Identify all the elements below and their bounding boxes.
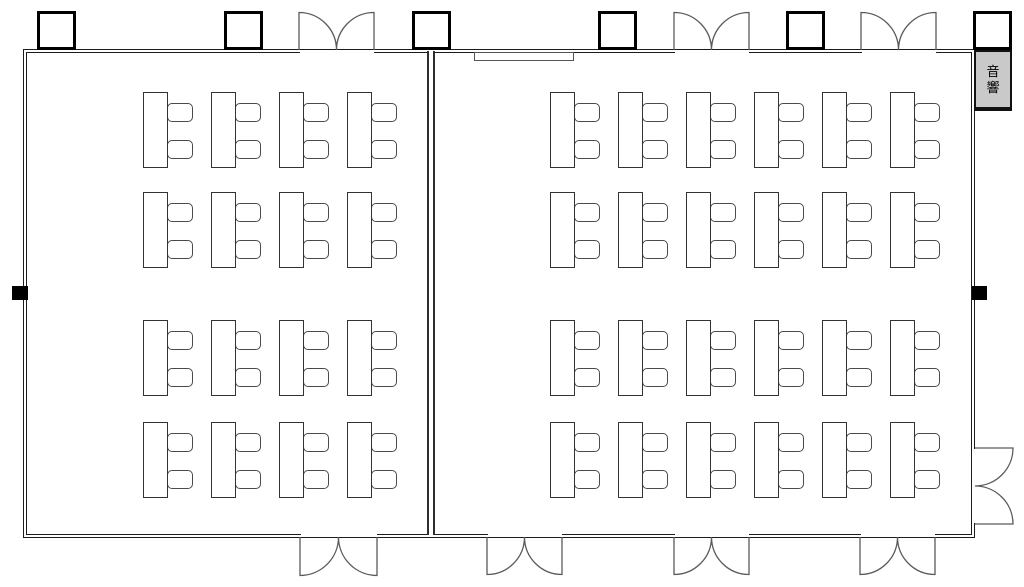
double-door	[674, 537, 749, 575]
double-door	[860, 537, 935, 575]
double-door	[674, 13, 749, 51]
chair	[710, 470, 736, 489]
partition-wall	[427, 51, 435, 535]
chair	[167, 368, 193, 387]
chair	[642, 368, 668, 387]
chair	[778, 433, 804, 452]
table	[347, 320, 372, 396]
chair	[574, 433, 600, 452]
chair	[235, 433, 261, 452]
chair	[642, 103, 668, 122]
wall-mounted-board	[474, 52, 574, 61]
table	[279, 320, 304, 396]
door-threshold	[675, 534, 749, 537]
table	[143, 92, 168, 168]
chair	[710, 140, 736, 159]
chair	[371, 368, 397, 387]
chair	[371, 140, 397, 159]
table	[143, 422, 168, 498]
chair	[778, 203, 804, 222]
chair	[778, 470, 804, 489]
chair	[642, 470, 668, 489]
chair	[167, 203, 193, 222]
table	[890, 320, 915, 396]
table	[618, 92, 643, 168]
door-threshold	[488, 534, 562, 537]
chair	[710, 331, 736, 350]
double-door	[299, 13, 374, 51]
pillar	[37, 11, 76, 50]
chair	[235, 331, 261, 350]
table	[550, 422, 575, 498]
table	[211, 422, 236, 498]
chair	[167, 103, 193, 122]
chair	[574, 240, 600, 259]
wall-outlet	[12, 286, 28, 300]
chair	[235, 140, 261, 159]
chair	[642, 140, 668, 159]
chair	[914, 103, 940, 122]
chair	[303, 240, 329, 259]
pillar	[224, 11, 263, 50]
pillar	[786, 11, 825, 50]
chair	[778, 240, 804, 259]
chair	[235, 470, 261, 489]
table	[686, 192, 711, 268]
table	[550, 92, 575, 168]
chair	[303, 203, 329, 222]
chair	[914, 433, 940, 452]
chair	[642, 240, 668, 259]
chair	[710, 368, 736, 387]
chair	[846, 368, 872, 387]
chair	[914, 368, 940, 387]
chair	[846, 433, 872, 452]
table	[279, 92, 304, 168]
double-door	[300, 537, 377, 576]
chair	[642, 433, 668, 452]
table	[822, 92, 847, 168]
table	[211, 320, 236, 396]
chair	[303, 103, 329, 122]
table	[618, 192, 643, 268]
chair	[846, 331, 872, 350]
chair	[574, 368, 600, 387]
double-door	[861, 13, 936, 51]
chair	[371, 331, 397, 350]
chair	[167, 240, 193, 259]
pillar	[598, 11, 637, 50]
table	[890, 192, 915, 268]
chair	[235, 240, 261, 259]
chair	[371, 433, 397, 452]
door-threshold	[861, 534, 935, 537]
double-door	[975, 448, 1013, 524]
door-threshold	[862, 51, 936, 54]
chair	[235, 368, 261, 387]
door-threshold	[675, 51, 749, 54]
chair	[303, 433, 329, 452]
table	[550, 320, 575, 396]
double-door	[487, 537, 562, 575]
chair	[846, 470, 872, 489]
table	[143, 192, 168, 268]
table	[143, 320, 168, 396]
door-threshold	[301, 534, 377, 537]
door-threshold	[972, 449, 977, 523]
chair	[778, 331, 804, 350]
chair	[574, 331, 600, 350]
chair	[167, 331, 193, 350]
door-threshold	[300, 51, 374, 54]
chair	[642, 203, 668, 222]
chair	[710, 433, 736, 452]
chair	[574, 203, 600, 222]
table	[347, 422, 372, 498]
table	[822, 320, 847, 396]
table	[686, 92, 711, 168]
table	[822, 192, 847, 268]
floor-plan: 音 響	[0, 0, 1024, 587]
table	[754, 422, 779, 498]
chair	[710, 240, 736, 259]
audio-booth: 音 響	[974, 50, 1012, 111]
chair	[303, 140, 329, 159]
table	[211, 92, 236, 168]
table	[618, 320, 643, 396]
chair	[778, 140, 804, 159]
table	[347, 192, 372, 268]
chair	[778, 103, 804, 122]
chair	[642, 331, 668, 350]
chair	[710, 103, 736, 122]
table	[279, 422, 304, 498]
pillar	[973, 11, 1012, 50]
chair	[914, 203, 940, 222]
chair	[371, 103, 397, 122]
chair	[167, 140, 193, 159]
pillar	[412, 11, 451, 50]
table	[279, 192, 304, 268]
table	[890, 92, 915, 168]
chair	[574, 140, 600, 159]
table	[618, 422, 643, 498]
chair	[235, 203, 261, 222]
chair	[371, 240, 397, 259]
audio-booth-label: 音 響	[976, 52, 1010, 107]
chair	[778, 368, 804, 387]
chair	[235, 103, 261, 122]
table	[211, 192, 236, 268]
table	[890, 422, 915, 498]
chair	[574, 103, 600, 122]
wall-outlet	[972, 286, 987, 300]
chair	[914, 240, 940, 259]
chair	[303, 470, 329, 489]
chair	[303, 331, 329, 350]
chair	[846, 140, 872, 159]
chair	[914, 331, 940, 350]
table	[550, 192, 575, 268]
chair	[846, 103, 872, 122]
chair	[914, 140, 940, 159]
table	[754, 320, 779, 396]
table	[686, 422, 711, 498]
chair	[167, 433, 193, 452]
table	[754, 92, 779, 168]
table	[347, 92, 372, 168]
table	[754, 192, 779, 268]
chair	[371, 203, 397, 222]
chair	[303, 368, 329, 387]
chair	[846, 203, 872, 222]
table	[822, 422, 847, 498]
chair	[371, 470, 397, 489]
chair	[710, 203, 736, 222]
chair	[846, 240, 872, 259]
chair	[914, 470, 940, 489]
chair	[574, 470, 600, 489]
chair	[167, 470, 193, 489]
table	[686, 320, 711, 396]
